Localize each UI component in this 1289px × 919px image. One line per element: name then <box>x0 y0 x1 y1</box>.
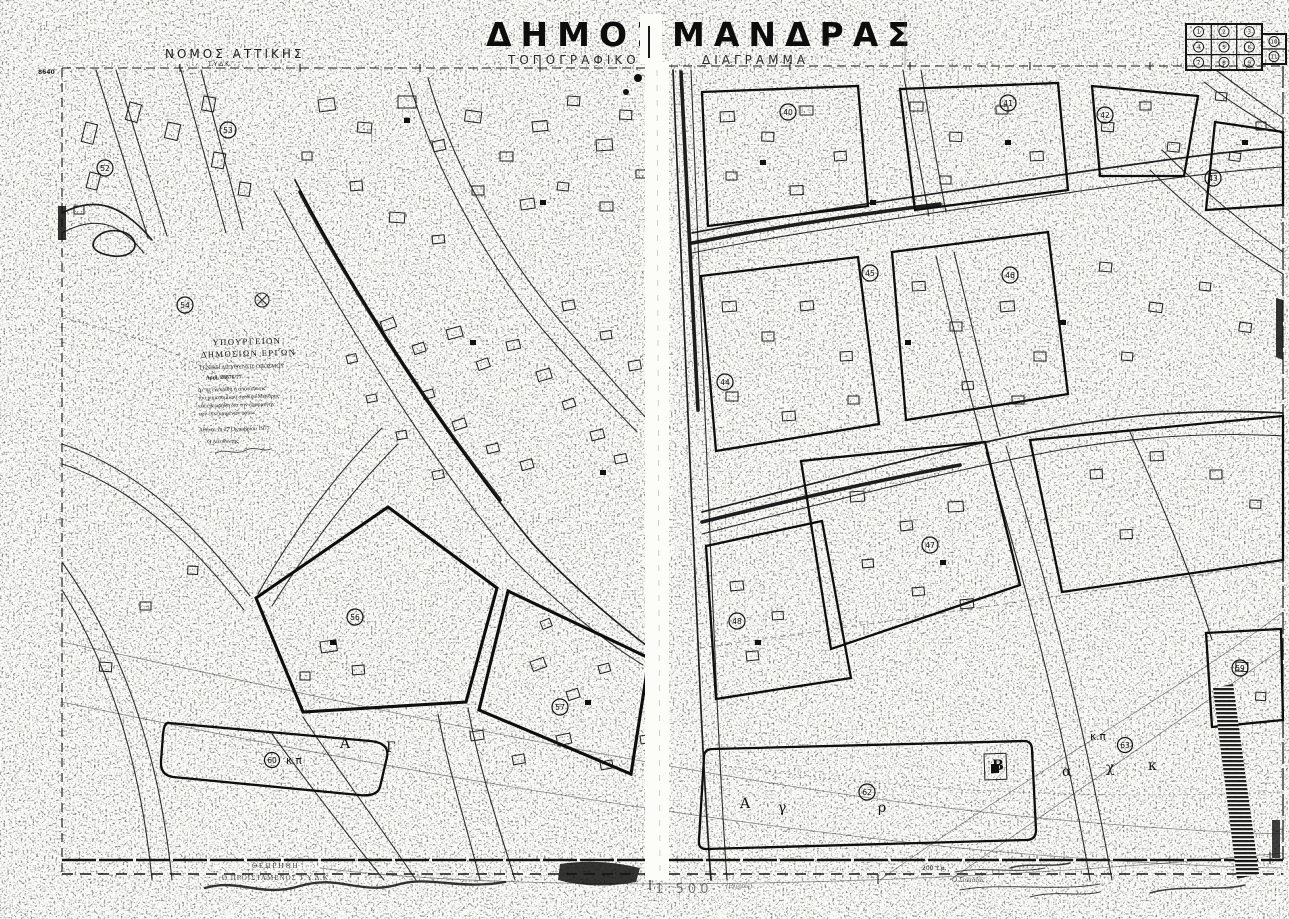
svg-text:53: 53 <box>223 126 233 135</box>
row-letter-x: χ <box>1106 760 1115 776</box>
title-right: ΜΑΝΔΡΑΣ <box>672 15 919 54</box>
svg-text:40: 40 <box>783 108 793 117</box>
svg-text:43: 43 <box>1208 174 1218 183</box>
letter-a-left: Α <box>339 736 351 752</box>
svg-text:2: 2 <box>1222 30 1226 36</box>
svg-text:ΥΠΟΥΡΓΕΙΟΝ: ΥΠΟΥΡΓΕΙΟΝ <box>212 335 281 347</box>
svg-text:3: 3 <box>1248 30 1252 36</box>
approved-note: ΘΕΩΡΗΘΗ <box>252 862 300 870</box>
svg-text:59: 59 <box>1235 664 1245 673</box>
svg-text:5: 5 <box>1222 45 1226 51</box>
kp-label-left: κ.π <box>286 755 303 767</box>
svg-text:9: 9 <box>1248 60 1252 66</box>
svg-text:Ο Διευθυντής: Ο Διευθυντής <box>207 439 239 446</box>
svg-text:52: 52 <box>100 164 110 173</box>
region-sublabel: Τ.Υ.Δ.Κ. <box>207 61 231 68</box>
svg-text:11: 11 <box>1271 55 1278 61</box>
svg-text:7: 7 <box>1197 60 1201 66</box>
svg-text:10: 10 <box>1271 40 1278 46</box>
edge-number: 8640 <box>38 69 55 76</box>
svg-text:63: 63 <box>1120 741 1130 750</box>
svg-text:60: 60 <box>267 756 277 765</box>
map-canvas: κ.π κ.π Β Α Γ Α γ ρ α χ κ 52 53 54 56 57… <box>0 0 1289 919</box>
row-letter-a: α <box>1062 764 1072 780</box>
subtitle-left: ΤΟΠΟΓΡΑΦΙΚΟΝ <box>507 53 653 67</box>
svg-text:41: 41 <box>1003 99 1013 108</box>
svg-text:44: 44 <box>720 378 730 387</box>
field-letter-r: ρ <box>878 800 886 816</box>
svg-text:47: 47 <box>925 541 935 550</box>
area-note: 200 τ.μ. <box>922 865 947 872</box>
svg-text:57: 57 <box>555 703 565 712</box>
svg-text:45: 45 <box>865 269 875 278</box>
svg-text:42: 42 <box>1100 111 1110 120</box>
scale-note: 1:500 <box>655 882 712 897</box>
svg-text:4: 4 <box>1197 45 1201 51</box>
place-note: (Ελευσίς) <box>726 882 753 890</box>
svg-text:62: 62 <box>862 788 872 797</box>
region-label: ΝΟΜΟΣ ΑΤΤΙΚΗΣ <box>165 47 305 61</box>
svg-text:Αριθ. 28876/77: Αριθ. 28876/77 <box>205 374 242 381</box>
svg-text:48: 48 <box>732 617 742 626</box>
svg-text:8: 8 <box>1222 60 1226 66</box>
row-letter-k: κ <box>1148 758 1157 774</box>
letter-g-left: Γ <box>386 740 396 756</box>
svg-text:6: 6 <box>1248 45 1252 51</box>
kp-label-right: κ.π <box>1090 731 1107 743</box>
svg-text:56: 56 <box>350 613 360 622</box>
svg-text:54: 54 <box>180 301 190 310</box>
field-letter-g: γ <box>778 800 786 816</box>
svg-text:1: 1 <box>1197 30 1201 36</box>
field-letter-a: Α <box>739 796 751 812</box>
subtitle-right: ΔΙΑΓΡΑΜΜΑ <box>702 53 809 67</box>
map-scan: κ.π κ.π Β Α Γ Α γ ρ α χ κ 52 53 54 56 57… <box>0 0 1289 919</box>
svg-text:46: 46 <box>1005 271 1015 280</box>
b-mark: Β <box>992 758 1004 774</box>
drafter-note: Ο Συντάξας <box>952 876 985 884</box>
approver-note: Ο ΠΡΟΪΣΤΑΜΕΝΟΣ Τ.Υ.Δ.Κ. <box>222 874 332 882</box>
